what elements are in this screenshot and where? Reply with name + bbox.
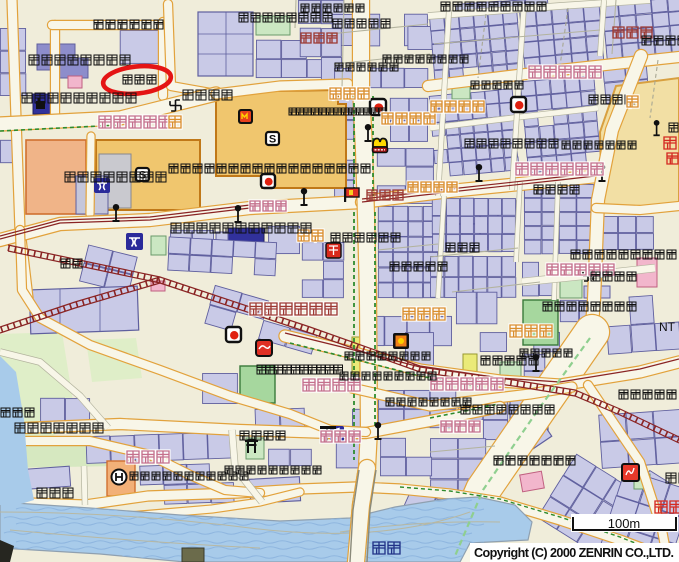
svg-text:Copyright (C) 2000 ZENRIN CO.,: Copyright (C) 2000 ZENRIN CO.,LTD. [474, 546, 674, 560]
svg-text:S: S [269, 133, 276, 145]
svg-text:NT: NT [659, 320, 676, 334]
svg-text:100m: 100m [608, 516, 641, 531]
